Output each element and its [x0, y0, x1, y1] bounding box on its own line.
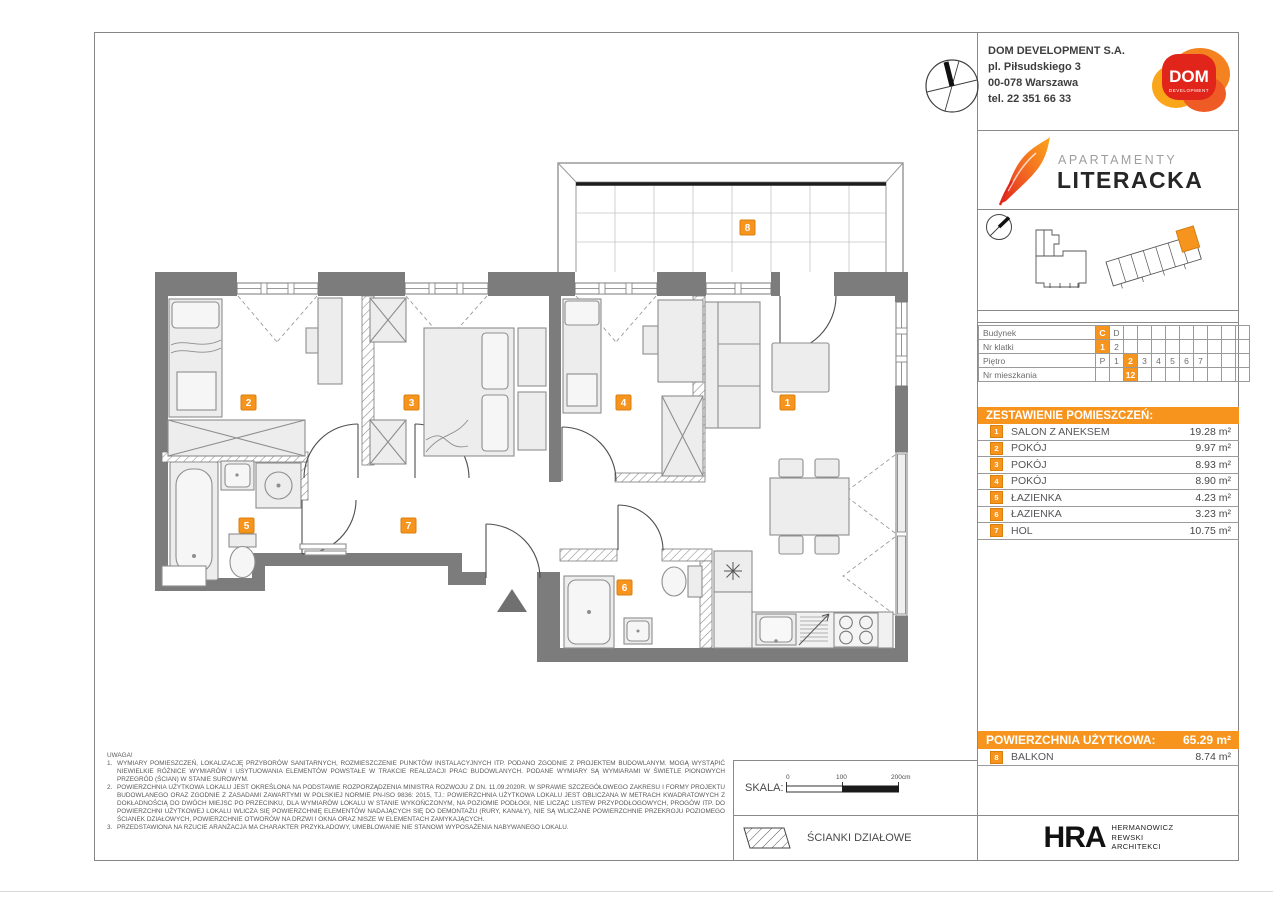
room-name: ŁAZIENKA: [1011, 492, 1195, 504]
bath6-fixtures: [564, 566, 702, 648]
svg-text:3: 3: [409, 398, 415, 409]
room-area: 8.93 m²: [1195, 459, 1231, 471]
architect-line2: REWSKI: [1112, 833, 1174, 842]
company-phone: tel. 22 351 66 33: [988, 92, 1138, 108]
room-row-1: 1 SALON Z ANEKSEM 19.28 m²: [978, 424, 1239, 441]
company-name: DOM DEVELOPMENT S.A.: [988, 44, 1138, 60]
room-area: 10.75 m²: [1190, 525, 1231, 537]
apartamenty-literacka-brand: APARTAMENTY LITERACKA: [978, 131, 1239, 209]
legend-partition-label: ŚCIANKI DZIAŁOWE: [807, 832, 912, 844]
hall-bench: [300, 544, 346, 555]
svg-text:2: 2: [246, 398, 252, 409]
fridge-icon: [724, 562, 742, 580]
room2-furniture: [168, 298, 342, 456]
scale-box: SKALA: 0 100 200cm: [733, 760, 977, 815]
room-name: ŁAZIENKA: [1011, 508, 1195, 520]
usable-area-label: POWIERZCHNIA UŻYTKOWA:: [986, 733, 1156, 747]
sheet-bottom-edge: [0, 891, 1273, 892]
room-row-7: 7 HOL 10.75 m²: [978, 523, 1239, 540]
scale-tick-200: 200cm: [891, 774, 911, 781]
room-label-4: 4: [616, 395, 631, 410]
plan-sheet: 1 2 3 4 5 6 7 8 DOM DEVELOPMENT S.A. pl.…: [0, 0, 1273, 900]
room-label-3: 3: [404, 395, 419, 410]
building-outline-left: [1036, 230, 1086, 288]
partition-hatch-icon: [743, 827, 791, 849]
brand-literacka: LITERACKA: [1057, 167, 1203, 194]
north-compass-icon: [920, 50, 986, 120]
room-area: 8.90 m²: [1195, 475, 1231, 487]
table-row: Nr klatki 1 2: [979, 340, 1250, 354]
hra-logo-text: HRA: [1044, 823, 1106, 853]
dom-development-logo: DOM DEVELOPMENT: [1148, 42, 1232, 118]
window-salon-right: [896, 302, 907, 386]
scale-tick-0: 0: [786, 774, 790, 781]
scale-bar: [786, 782, 906, 796]
room-area: 19.28 m²: [1190, 426, 1231, 438]
room-name: POKÓJ: [1011, 459, 1195, 471]
room-area: 3.23 m²: [1195, 508, 1231, 520]
svg-text:6: 6: [622, 583, 628, 594]
balcony-name: BALKON: [1011, 751, 1195, 763]
room-area: 4.23 m²: [1195, 492, 1231, 504]
note-item-1: 1. WYMIARY POMIESZCZEŃ, LOKALIZACJĘ PRZY…: [107, 760, 725, 784]
room-badge: 6: [990, 508, 1003, 521]
room-row-4: 4 POKÓJ 8.90 m²: [978, 474, 1239, 491]
svg-text:DOM: DOM: [1169, 67, 1209, 86]
svg-text:8: 8: [745, 223, 751, 234]
legend-box: ŚCIANKI DZIAŁOWE: [733, 815, 977, 861]
company-info: DOM DEVELOPMENT S.A. pl. Piłsudskiego 3 …: [988, 44, 1138, 108]
note-item-3: 3. PRZEDSTAWIONA NA RZUCIE ARANŻACJA MA …: [107, 824, 725, 832]
furniture: [162, 298, 893, 648]
bath5-fixtures: [162, 461, 301, 586]
note-item-2: 2. POWIERZCHNIA UŻYTKOWA LOKALU JEST OKR…: [107, 784, 725, 824]
room-badge: 3: [990, 458, 1003, 471]
room-label-7: 7: [401, 518, 416, 533]
room-label-1: 1: [780, 395, 795, 410]
room-label-5: 5: [239, 518, 254, 533]
room-label-8: 8: [740, 220, 755, 235]
entrance-arrow: [497, 589, 527, 612]
brand-apartamenty: APARTAMENTY: [1058, 153, 1177, 167]
svg-text:DEVELOPMENT: DEVELOPMENT: [1169, 88, 1209, 93]
building-outline-right: [1103, 226, 1204, 291]
window-salon-top: [706, 283, 771, 294]
balcony-tile-grid: [577, 184, 886, 272]
unit-location-table: Budynek C D Nr klatki 1 2 Piętro P 1 2 3…: [978, 325, 1250, 382]
room-row-5: 5 ŁAZIENKA 4.23 m²: [978, 490, 1239, 507]
architect-logo: HRA HERMANOWICZ REWSKI ARCHITEKCI: [978, 815, 1239, 860]
room-row-2: 2 POKÓJ 9.97 m²: [978, 441, 1239, 458]
balcony-badge: 8: [990, 751, 1003, 764]
table-row: Budynek C D: [979, 326, 1250, 340]
feather-icon: [992, 133, 1054, 207]
room-name: HOL: [1011, 525, 1190, 537]
table-row: Nr mieszkania 12: [979, 368, 1250, 382]
svg-text:1: 1: [785, 398, 791, 409]
company-address1: pl. Piłsudskiego 3: [988, 60, 1138, 76]
architect-line1: HERMANOWICZ: [1112, 823, 1174, 832]
room-badge: 5: [990, 491, 1003, 504]
usable-area-value: 65.29 m²: [1183, 733, 1231, 747]
room-label-2: 2: [241, 395, 256, 410]
salon-furniture: [705, 302, 849, 554]
key-plan-box: [978, 210, 1239, 310]
room-row-3: 3 POKÓJ 8.93 m²: [978, 457, 1239, 474]
balcony: [558, 163, 903, 272]
kitchen-fixtures: [714, 551, 893, 648]
room-badge: 4: [990, 475, 1003, 488]
key-plan-compass-icon: [987, 215, 1012, 240]
balcony-french-door: [843, 452, 907, 616]
notes-title: UWAGA!: [107, 752, 725, 760]
architect-line3: ARCHITEKCI: [1112, 842, 1174, 851]
room3-furniture: [370, 298, 546, 464]
room-name: POKÓJ: [1011, 442, 1195, 454]
room-badge: 1: [990, 425, 1003, 438]
room-badge: 7: [990, 524, 1003, 537]
room-name: SALON Z ANEKSEM: [1011, 426, 1190, 438]
scale-tick-100: 100: [836, 774, 847, 781]
floor-plan: 1 2 3 4 5 6 7 8: [100, 140, 930, 680]
svg-text:5: 5: [244, 521, 250, 532]
room-area: 9.97 m²: [1195, 442, 1231, 454]
door-entry: [486, 524, 540, 578]
room-badge: 2: [990, 442, 1003, 455]
table-row: Piętro P 1 2 3 4 5 6 7: [979, 354, 1250, 368]
notes-block: UWAGA! 1. WYMIARY POMIESZCZEŃ, LOKALIZAC…: [107, 752, 725, 832]
rooms-header: ZESTAWIENIE POMIESZCZEŃ:: [978, 407, 1239, 424]
door-bath6: [618, 505, 663, 550]
room-name: POKÓJ: [1011, 475, 1195, 487]
balcony-area: 8.74 m²: [1195, 751, 1231, 763]
svg-text:4: 4: [621, 398, 627, 409]
usable-area-bar: POWIERZCHNIA UŻYTKOWA: 65.29 m²: [978, 731, 1239, 749]
scale-label: SKALA:: [745, 782, 784, 794]
door-room4: [562, 427, 616, 481]
room-row-6: 6 ŁAZIENKA 3.23 m²: [978, 507, 1239, 524]
svg-text:7: 7: [406, 521, 412, 532]
room4-furniture: [563, 299, 703, 476]
balcony-row: 8 BALKON 8.74 m²: [978, 749, 1239, 766]
company-address2: 00-078 Warszawa: [988, 76, 1138, 92]
room-label-6: 6: [617, 580, 632, 595]
door-room2: [304, 424, 358, 478]
